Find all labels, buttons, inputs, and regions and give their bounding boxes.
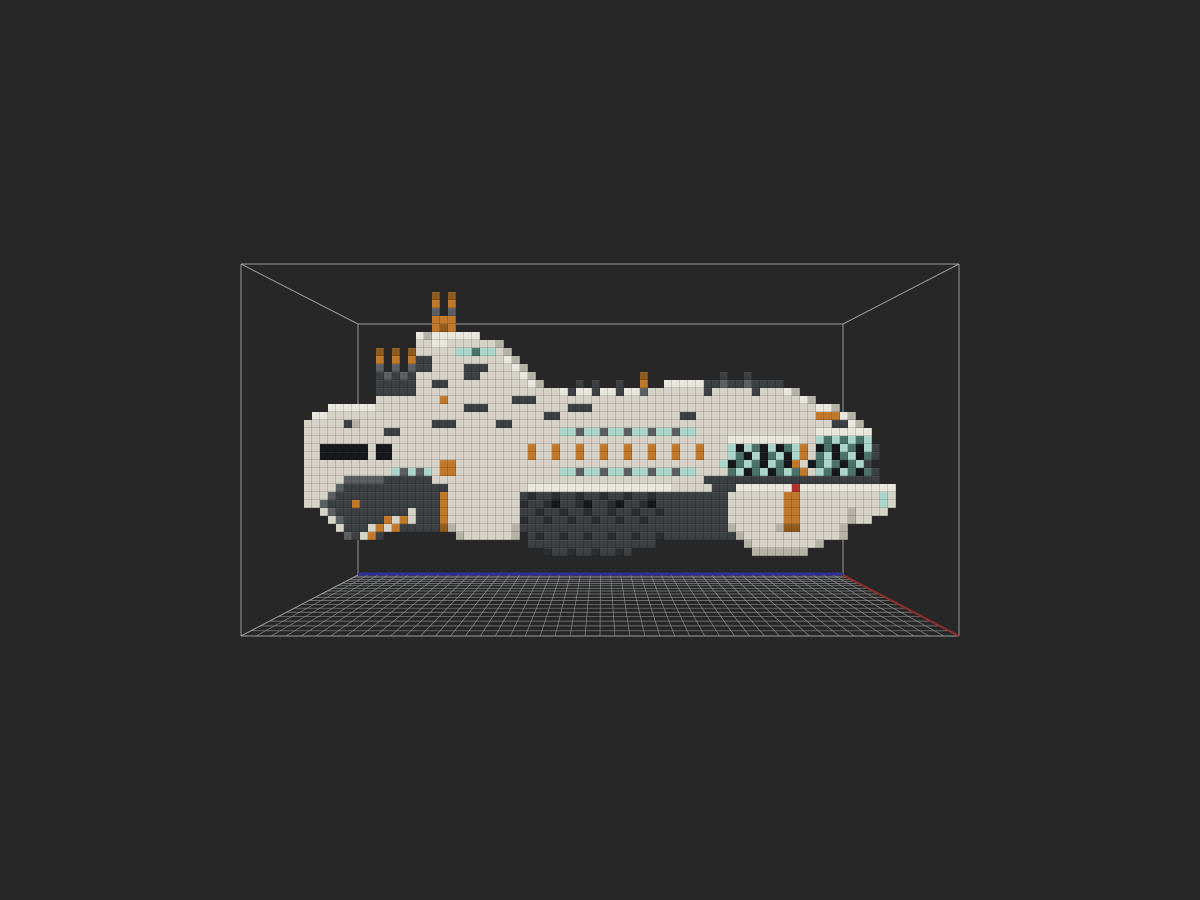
axis-line-right-red — [843, 575, 959, 636]
viewport-3d[interactable] — [0, 0, 1200, 900]
voxel-ship-model[interactable] — [304, 292, 896, 556]
floor-grid — [241, 575, 959, 636]
